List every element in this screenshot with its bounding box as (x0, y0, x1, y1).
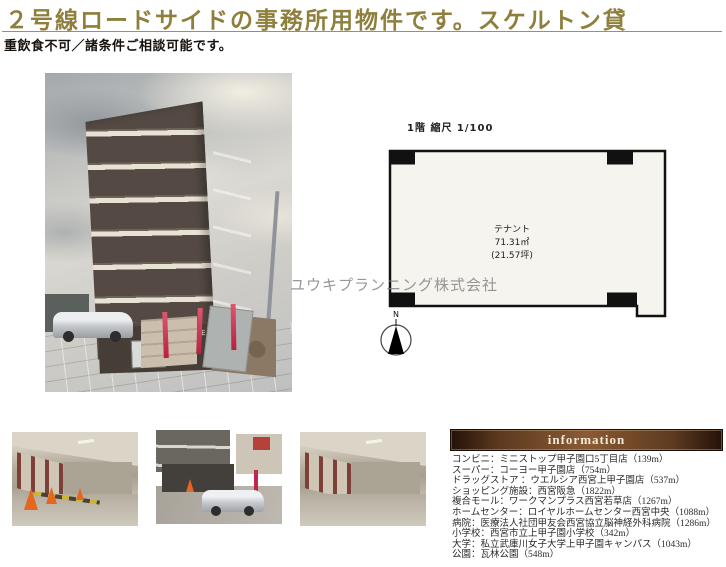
red-pole (231, 304, 237, 350)
car-wheel (110, 331, 121, 342)
info-item: 病院：医療法人社団甲友会西宮協立脳神経外科病院（1286m） (452, 519, 726, 530)
info-item: 大学：私立武庫川女子大学上甲子園キャンパス（1043m） (452, 540, 726, 551)
information-heading-label: information (548, 432, 625, 448)
back-wall (352, 462, 420, 496)
info-item: ショッピング施設：西宮阪急（1822m） (452, 487, 726, 498)
thumbnail-photo-garage-interior-1 (12, 432, 138, 526)
room-name: テナント (494, 224, 530, 235)
compass-north-label: N (393, 310, 399, 319)
info-item: スーパー：コーヨー甲子園店（754m） (452, 466, 726, 477)
page-subtitle: 重飲食不可／諸条件ご相談可能です。 (4, 35, 232, 54)
garage-floor (300, 494, 426, 526)
parked-car (202, 490, 264, 512)
column (607, 293, 637, 307)
info-item: ホームセンター：ロイヤルホームセンター西宮中央（1088m） (452, 508, 726, 519)
nearby-facilities-list: コンビニ：ミニストップ甲子園口5丁目店（139m）スーパー：コーヨー甲子園店（7… (452, 455, 726, 561)
north-compass-icon: N (376, 306, 416, 362)
parked-car (53, 312, 133, 338)
car-wheel (63, 331, 74, 342)
garage-opening (162, 464, 234, 492)
thumbnail-photo-garage-interior-2 (300, 432, 426, 526)
gray-panel (202, 306, 253, 373)
main-building-photo: RUSE 918 (45, 73, 292, 392)
info-item: コンビニ：ミニストップ甲子園口5丁目店（139m） (452, 455, 726, 466)
info-item: ドラッグストア ：ウエルシア西宮上甲子園店（537m） (452, 476, 726, 487)
page-title: ２号線ロードサイドの事務所用物件です。スケルトン貸 (5, 1, 628, 35)
info-item: 小学校：西宮市立上甲子園小学校（342m） (452, 529, 726, 540)
block-wall (141, 316, 197, 368)
information-header: information (450, 429, 723, 451)
room-area-sqm: 71.31㎡ (495, 237, 530, 248)
red-signboard (253, 437, 270, 450)
thumbnail-photo-garage-entrance (156, 430, 282, 524)
room-area-tsubo: (21.57坪) (491, 250, 533, 261)
property-flyer-page: ２号線ロードサイドの事務所用物件です。スケルトン貸 重飲食不可／諸条件ご相談可能… (0, 0, 726, 567)
info-item: 複合モール：ワークマンプラス西宮若草店（1267m） (452, 497, 726, 508)
column (391, 152, 415, 165)
floor-plan-label: 1階 縮尺 1/100 (407, 119, 493, 134)
info-item: 公園：瓦林公園（548m） (452, 550, 726, 561)
title-divider (2, 31, 722, 32)
column (607, 152, 633, 165)
back-wall (64, 462, 132, 496)
car-wheel (211, 506, 221, 516)
car-wheel (244, 506, 254, 516)
company-watermark: ユウキプランニング株式会社 (290, 274, 498, 295)
